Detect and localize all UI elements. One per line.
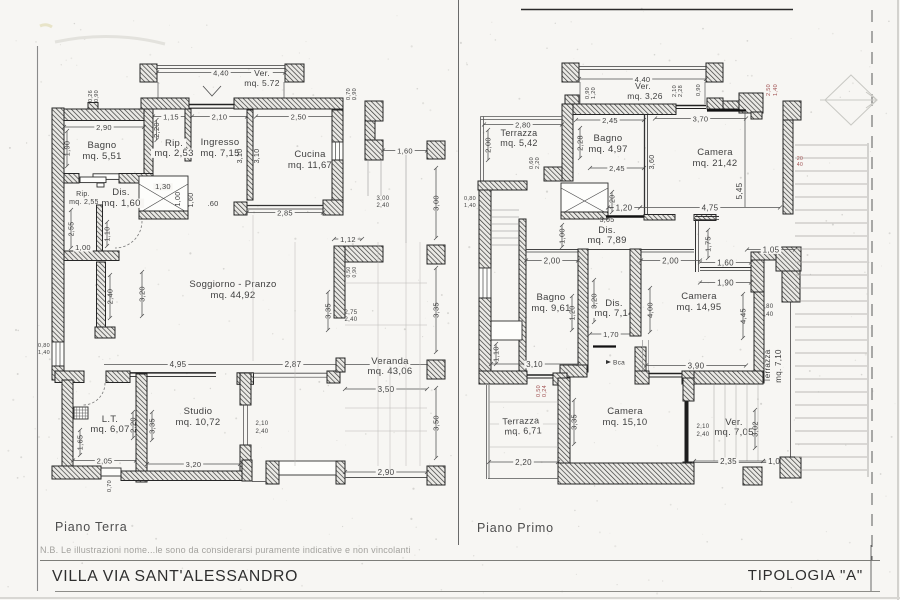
svg-text:0,80: 0,80	[38, 343, 50, 349]
svg-text:0,90: 0,90	[352, 267, 358, 278]
svg-text:2,10: 2,10	[256, 421, 269, 427]
svg-text:Camera: Camera	[697, 147, 733, 158]
svg-text:2,40: 2,40	[106, 289, 115, 305]
svg-text:1,40: 1,40	[464, 203, 476, 209]
svg-text:2,28: 2,28	[576, 135, 585, 151]
svg-text:1,15: 1,15	[163, 112, 179, 121]
svg-text:mq. 21,42: mq. 21,42	[693, 158, 738, 169]
svg-text:Dis.: Dis.	[112, 187, 130, 198]
svg-text:mq. 6,07: mq. 6,07	[90, 424, 129, 435]
svg-text:4,75: 4,75	[702, 203, 719, 212]
svg-text:1,90: 1,90	[717, 278, 734, 287]
svg-text:Rip.: Rip.	[76, 191, 90, 198]
svg-text:2,00: 2,00	[662, 256, 679, 265]
svg-text:4,95: 4,95	[170, 360, 187, 369]
svg-text:mq. 15,10: mq. 15,10	[603, 417, 648, 428]
svg-text:mq. 1,60: mq. 1,60	[101, 198, 140, 209]
svg-text:1,60: 1,60	[717, 258, 734, 267]
svg-text:mq. 9,61: mq. 9,61	[531, 303, 570, 314]
svg-text:4,45: 4,45	[739, 308, 748, 324]
svg-text:mq. 5,42: mq. 5,42	[500, 138, 537, 148]
svg-text:Piano Primo: Piano Primo	[477, 521, 554, 535]
svg-text:mq. 3,26: mq. 3,26	[627, 91, 662, 101]
svg-text:1,00: 1,00	[75, 243, 91, 252]
svg-text:mq. 7,89: mq. 7,89	[587, 235, 626, 246]
svg-text:mq. 5.72: mq. 5.72	[244, 78, 279, 88]
svg-text:Soggiorno - Pranzo: Soggiorno - Pranzo	[189, 279, 276, 290]
svg-text:1,90: 1,90	[63, 141, 72, 157]
svg-text:2,40: 2,40	[256, 429, 269, 435]
svg-text:1,10: 1,10	[105, 227, 112, 242]
svg-text:2,55: 2,55	[69, 222, 76, 237]
svg-text:.60: .60	[207, 199, 218, 208]
svg-text:2,50: 2,50	[766, 84, 772, 96]
svg-text:2,20: 2,20	[152, 122, 161, 138]
svg-text:Bagno: Bagno	[537, 292, 566, 303]
svg-text:0,80: 0,80	[464, 196, 476, 202]
svg-text:2,00: 2,00	[484, 137, 493, 153]
svg-text:mq. 4,97: mq. 4,97	[588, 144, 627, 155]
svg-text:1,60: 1,60	[397, 146, 413, 155]
svg-text:0,90: 0,90	[352, 88, 358, 100]
svg-text:1,65: 1,65	[76, 435, 85, 451]
svg-text:1,60: 1,60	[188, 193, 195, 208]
svg-text:3,00: 3,00	[432, 195, 441, 211]
svg-text:3,90: 3,90	[688, 361, 705, 370]
svg-text:3,35: 3,35	[432, 302, 441, 318]
svg-text:mq. 6,71: mq. 6,71	[504, 425, 542, 436]
svg-text:mq. 10,72: mq. 10,72	[176, 417, 221, 428]
svg-text:mq. 7,15: mq. 7,15	[200, 148, 239, 159]
svg-text:Ver.: Ver.	[254, 68, 270, 78]
svg-text:2,10: 2,10	[697, 424, 710, 430]
svg-text:2,40: 2,40	[377, 203, 390, 209]
svg-text:2,45: 2,45	[609, 164, 625, 173]
svg-text:3,20: 3,20	[138, 286, 147, 302]
svg-text:mq. 2,55: mq. 2,55	[69, 199, 99, 206]
svg-text:1,40: 1,40	[38, 350, 50, 356]
svg-text:1,20: 1,20	[591, 87, 597, 99]
svg-text:1,40: 1,40	[773, 84, 779, 96]
svg-text:mq. 5,51: mq. 5,51	[82, 151, 121, 162]
svg-text:TIPOLOGIA "A": TIPOLOGIA "A"	[748, 567, 863, 584]
svg-text:Studio: Studio	[184, 406, 213, 417]
svg-text:Cucina: Cucina	[294, 149, 326, 160]
svg-text:2,75: 2,75	[345, 310, 358, 316]
svg-text:N.B. Le illustrazioni nome...l: N.B. Le illustrazioni nome...le sono da …	[40, 545, 411, 555]
svg-text:1,10: 1,10	[492, 346, 501, 362]
svg-text:3,10: 3,10	[237, 149, 244, 164]
svg-text:Piano Terra: Piano Terra	[55, 520, 128, 534]
svg-text:1,70: 1,70	[603, 330, 619, 339]
svg-text:3,10: 3,10	[254, 149, 261, 164]
svg-text:2,90: 2,90	[378, 468, 395, 477]
svg-text:mq. 2,53: mq. 2,53	[154, 148, 193, 159]
svg-text:Bagno: Bagno	[88, 140, 117, 151]
svg-text:3,35: 3,35	[324, 303, 333, 319]
svg-text:Terrazza: Terrazza	[763, 349, 772, 382]
svg-text:2,50: 2,50	[291, 112, 307, 121]
svg-text:3,20: 3,20	[590, 293, 599, 309]
svg-text:3,35: 3,35	[570, 414, 579, 430]
svg-text:4,40: 4,40	[213, 68, 229, 77]
svg-text:2,85: 2,85	[277, 208, 293, 217]
svg-text:5,45: 5,45	[735, 182, 744, 199]
svg-text:VILLA VIA SANT'ALESSANDRO: VILLA VIA SANT'ALESSANDRO	[52, 568, 298, 585]
svg-text:2,87: 2,87	[285, 360, 302, 369]
svg-text:1,05: 1,05	[763, 245, 780, 254]
svg-text:mq. 44,92: mq. 44,92	[211, 290, 256, 301]
svg-text:0,90: 0,90	[94, 90, 100, 102]
svg-text:1,00: 1,00	[558, 228, 567, 244]
svg-text:Ver.: Ver.	[635, 81, 651, 91]
svg-text:mq. 14,95: mq. 14,95	[677, 302, 722, 313]
svg-text:2,00: 2,00	[544, 256, 561, 265]
svg-text:1,00: 1,00	[175, 192, 182, 207]
svg-text:3,60: 3,60	[649, 155, 656, 170]
svg-text:2,10: 2,10	[212, 112, 228, 121]
svg-text:2,05: 2,05	[97, 456, 113, 465]
svg-text:Bca: Bca	[613, 360, 625, 367]
svg-text:mq. 11,67: mq. 11,67	[288, 160, 332, 171]
svg-text:40: 40	[797, 162, 803, 168]
svg-text:2,20: 2,20	[535, 157, 541, 169]
svg-text:Camera: Camera	[607, 406, 643, 417]
svg-text:3,05: 3,05	[600, 217, 615, 224]
svg-text:3,20: 3,20	[186, 460, 202, 469]
svg-text:1,75: 1,75	[704, 236, 713, 252]
svg-text:1,12: 1,12	[340, 235, 356, 244]
svg-text:Ingresso: Ingresso	[201, 137, 240, 148]
svg-text:1,20: 1,20	[570, 306, 577, 321]
svg-text:3,10: 3,10	[526, 360, 543, 369]
svg-text:Camera: Camera	[681, 291, 717, 302]
svg-text:1,20: 1,20	[616, 203, 633, 212]
svg-text:2,40: 2,40	[697, 432, 710, 438]
svg-text:Bagno: Bagno	[594, 133, 623, 144]
svg-text:1,30: 1,30	[155, 182, 171, 191]
svg-text:3,35: 3,35	[148, 418, 157, 434]
svg-text:2,20: 2,20	[515, 458, 532, 467]
svg-text:2,28: 2,28	[678, 85, 684, 97]
svg-text:2,40: 2,40	[345, 317, 358, 323]
svg-text:2,45: 2,45	[602, 116, 618, 125]
svg-text:3,50: 3,50	[432, 415, 441, 431]
svg-text:3,70: 3,70	[693, 114, 709, 123]
svg-text:mq. 7,10: mq. 7,10	[774, 349, 783, 383]
svg-text:2,35: 2,35	[720, 457, 737, 466]
svg-text:4,00: 4,00	[646, 302, 655, 318]
svg-text:0,24: 0,24	[542, 385, 548, 397]
svg-text:3,00: 3,00	[377, 196, 390, 202]
svg-text:mq. 7,14: mq. 7,14	[594, 308, 633, 319]
svg-text:0,70: 0,70	[107, 480, 113, 492]
svg-text:3,50: 3,50	[378, 385, 395, 394]
svg-text:0,90: 0,90	[696, 84, 702, 96]
svg-text:mq. 7,05: mq. 7,05	[714, 427, 753, 438]
svg-text:Terrazza: Terrazza	[501, 128, 538, 138]
svg-text:2,90: 2,90	[96, 123, 112, 132]
